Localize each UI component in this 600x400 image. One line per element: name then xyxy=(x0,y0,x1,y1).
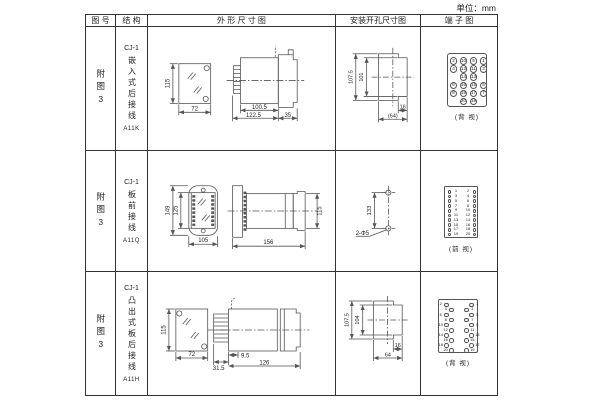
dim-label: 9.5 xyxy=(241,353,250,359)
terminal-number: 5 xyxy=(473,313,481,317)
terminal-circle: 6 xyxy=(450,82,458,90)
terminal-circle: 12 xyxy=(460,65,468,73)
terminal-number: 20 xyxy=(442,348,450,352)
col-header-terminal: 端 子 图 xyxy=(421,15,497,27)
terminal-circle: 15 xyxy=(470,82,478,90)
terminal-diagram-a11k: 2109141211314136161558181772019 xyxy=(447,53,487,107)
terminal-circle xyxy=(473,223,477,227)
outline-cell-row1: 115 72 100.5 122.5 35 xyxy=(148,27,336,151)
terminal-circle: 18 xyxy=(460,90,468,98)
dim-label: 133 xyxy=(367,205,373,216)
outline-cell-row3: 115 72 9.5 31.5 126 xyxy=(148,272,336,395)
fig-no-label: 附图3 xyxy=(96,69,105,108)
dim-label: 100.5 xyxy=(252,105,268,111)
mounting-drawing-a11q: 133 2-Φ5 xyxy=(336,151,420,271)
terminal-circle xyxy=(473,190,477,194)
terminal-number: 20 xyxy=(464,232,472,236)
terminal-circle xyxy=(473,195,477,199)
col-header-outline: 外 形 尺 寸 图 xyxy=(148,15,336,27)
terminal-circle xyxy=(449,318,454,323)
terminal-circle xyxy=(448,218,452,222)
dim-label: 104 xyxy=(355,315,361,324)
dim-label: 126 xyxy=(259,360,270,366)
terminal-circle: 4 xyxy=(450,65,458,73)
terminal-number: 3 xyxy=(468,307,476,311)
dim-label: 64 xyxy=(385,352,391,358)
spec-table: 图 号 结 构 外 形 尺 寸 图 安装开孔尺寸图 端 子 图 附图3 CJ-1… xyxy=(85,14,498,396)
terminal-circle xyxy=(449,348,454,353)
terminal-circle xyxy=(473,209,477,213)
terminal-circle: 13 xyxy=(470,73,478,81)
fig-no-cell-row1: 附图3 xyxy=(86,27,116,151)
terminal-circle: 11 xyxy=(470,65,478,73)
col-header-figure: 图 号 xyxy=(86,15,116,27)
dim-label: 105 xyxy=(198,238,209,244)
terminal-circle xyxy=(473,218,477,222)
mounting-cell-row3: 107.5 104 16 64 xyxy=(336,272,421,395)
dim-label: 101 xyxy=(359,73,365,82)
structure-name: 凸出式板后接线 xyxy=(128,296,136,373)
fig-no-label: 附图3 xyxy=(96,192,105,231)
terminal-number: 19 xyxy=(452,232,460,236)
dim-label: 115 xyxy=(161,325,167,335)
dim-label: 16 xyxy=(395,343,401,349)
dim-label: 122.5 xyxy=(246,113,262,119)
terminal-diagram-a11q: 1234567891011121314151617181920 xyxy=(444,186,478,238)
structure-name: 嵌入式后接线 xyxy=(128,56,136,122)
terminal-number: 8 xyxy=(442,318,450,322)
dim-label: 156 xyxy=(263,240,274,246)
dim-label: 149 xyxy=(165,205,171,216)
terminal-circle xyxy=(448,204,452,208)
hole-label: 2-Φ5 xyxy=(356,231,370,237)
structure-series: CJ-1 xyxy=(124,285,139,292)
dim-label: 107.5 xyxy=(348,70,354,84)
terminal-diagram-a11h: 2468101214161820135791113151719 xyxy=(438,299,478,353)
terminal-number: 6 xyxy=(437,313,445,317)
terminal-number: 1 xyxy=(473,302,481,306)
structure-model: A11H xyxy=(123,377,140,383)
terminal-circle xyxy=(473,233,477,237)
mounting-drawing-a11k: 107.5 101 16 (64) xyxy=(336,27,420,150)
terminal-circle xyxy=(448,223,452,227)
terminal-caption: (背 视) xyxy=(447,111,487,121)
terminal-circle: 1 xyxy=(480,57,488,65)
terminal-caption: (前 视) xyxy=(444,243,478,253)
terminal-circle: 9 xyxy=(470,57,478,65)
terminal-circle xyxy=(473,199,477,203)
mounting-cell-row2: 133 2-Φ5 xyxy=(336,151,421,272)
outline-drawing-a11k: 115 72 100.5 122.5 35 xyxy=(148,27,335,150)
terminal-circle xyxy=(448,233,452,237)
spec-sheet-page: 单位：mm 图 号 结 构 外 形 尺 寸 图 安装开孔尺寸图 端 子 图 附图… xyxy=(0,0,600,400)
unit-label: 单位：mm xyxy=(396,2,496,14)
terminal-circle: 3 xyxy=(480,65,488,73)
outline-drawing-a11h: 115 72 9.5 31.5 126 xyxy=(148,272,335,395)
dim-label: 31.5 xyxy=(213,366,225,372)
terminal-circle xyxy=(448,199,452,203)
terminal-circle: 19 xyxy=(470,98,478,106)
fig-no-label: 附图3 xyxy=(96,314,105,353)
mounting-drawing-a11h: 107.5 104 16 64 xyxy=(336,272,420,395)
dim-label: 115 xyxy=(318,206,324,216)
dim-label: (64) xyxy=(388,114,398,120)
terminal-cell-row3: 2468101214161820135791113151719 (背 视) xyxy=(421,272,497,395)
dim-label: 72 xyxy=(191,106,198,112)
terminal-circle xyxy=(448,209,452,213)
structure-name: 板前接线 xyxy=(128,190,136,234)
terminal-circle: 17 xyxy=(470,90,478,98)
dim-label: 16 xyxy=(400,104,406,110)
terminal-circle xyxy=(473,204,477,208)
terminal-circle xyxy=(448,228,452,232)
structure-model: A11Q xyxy=(123,238,140,244)
terminal-number: 19 xyxy=(468,348,476,352)
outline-drawing-a11q: 149 125 105 156 115 xyxy=(148,151,335,271)
terminal-circle: 8 xyxy=(450,90,458,98)
structure-cell-row3: CJ-1 凸出式板后接线 A11H xyxy=(116,272,148,395)
terminal-circle xyxy=(448,214,452,218)
terminal-circle xyxy=(473,228,477,232)
terminal-number: 7 xyxy=(468,318,476,322)
terminal-circle: 20 xyxy=(460,98,468,106)
fig-no-cell-row2: 附图3 xyxy=(86,151,116,272)
terminal-number: 2 xyxy=(437,302,445,306)
terminal-cell-row2: 1234567891011121314151617181920 (前 视) xyxy=(421,151,497,272)
col-header-mounting: 安装开孔尺寸图 xyxy=(336,15,421,27)
terminal-circle: 16 xyxy=(460,82,468,90)
col-header-structure: 结 构 xyxy=(116,15,148,27)
terminal-circle: 7 xyxy=(480,90,488,98)
terminal-circle xyxy=(448,195,452,199)
dim-label: 115 xyxy=(165,78,171,88)
terminal-circle: 10 xyxy=(460,57,468,65)
dim-label: 125 xyxy=(173,205,179,216)
mounting-cell-row1: 107.5 101 16 (64) xyxy=(336,27,421,151)
structure-cell-row2: CJ-1 板前接线 A11Q xyxy=(116,151,148,272)
structure-series: CJ-1 xyxy=(124,45,139,52)
terminal-circle xyxy=(449,308,454,313)
terminal-circle: 14 xyxy=(460,73,468,81)
terminal-caption: (背 视) xyxy=(438,357,478,367)
terminal-circle: 2 xyxy=(450,57,458,65)
outline-cell-row2: 149 125 105 156 115 xyxy=(148,151,336,272)
terminal-circle xyxy=(449,338,454,343)
fig-no-cell-row3: 附图3 xyxy=(86,272,116,395)
terminal-circle xyxy=(448,190,452,194)
structure-series: CJ-1 xyxy=(124,179,139,186)
terminal-circle xyxy=(449,328,454,333)
structure-cell-row1: CJ-1 嵌入式后接线 A11K xyxy=(116,27,148,151)
terminal-number: 4 xyxy=(442,307,450,311)
terminal-number: 9 xyxy=(473,323,481,327)
dim-label: 35 xyxy=(284,113,291,119)
dim-label: 72 xyxy=(188,352,195,358)
structure-model: A11K xyxy=(123,126,139,132)
terminal-cell-row1: 2109141211314136161558181772019 (背 视) xyxy=(421,27,497,151)
terminal-circle xyxy=(473,214,477,218)
terminal-circle: 5 xyxy=(480,82,488,90)
dim-label: 107.5 xyxy=(344,313,350,327)
